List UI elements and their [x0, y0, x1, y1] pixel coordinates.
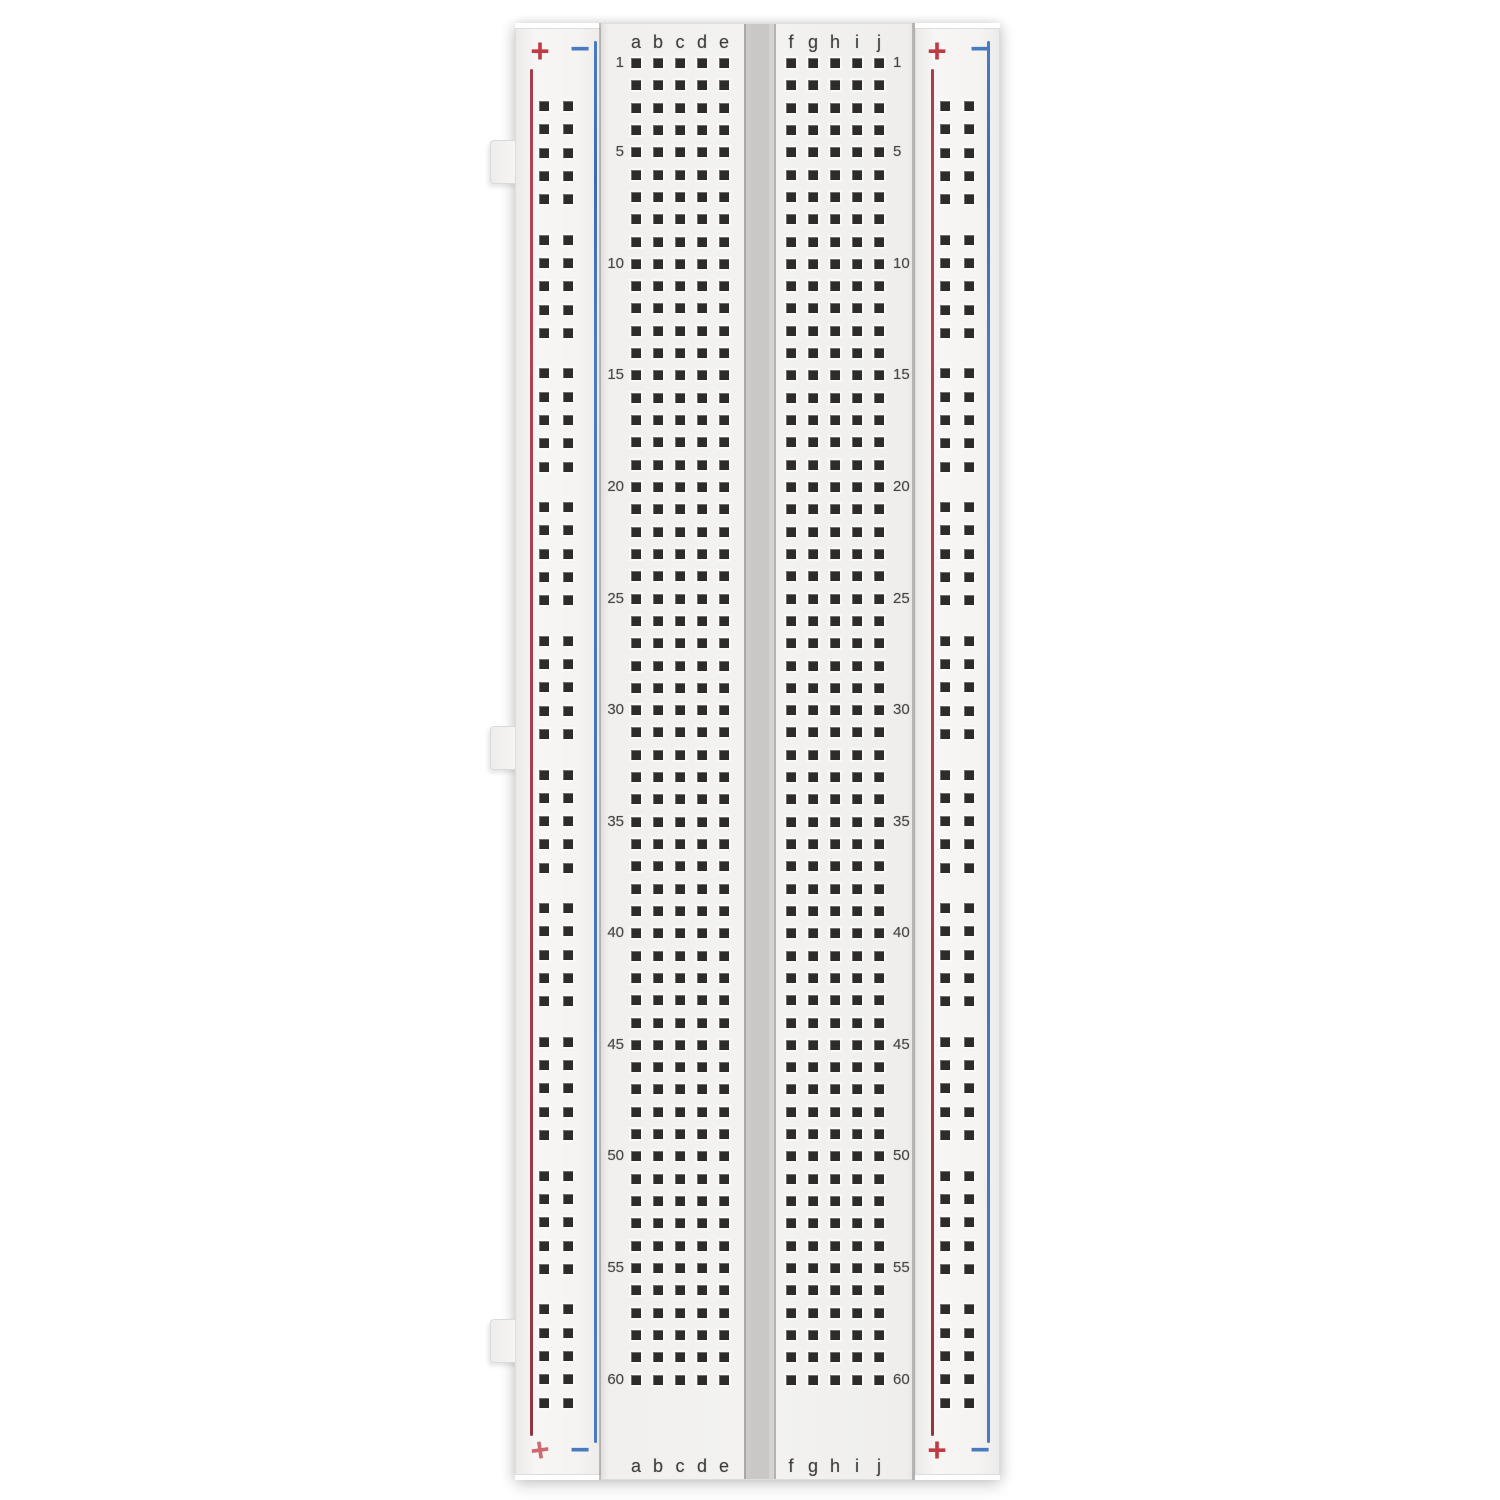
terminal-hole [874, 326, 884, 336]
terminal-hole [874, 1062, 884, 1072]
terminal-hole [653, 1018, 663, 1028]
terminal-hole [675, 1084, 685, 1094]
rail-hole [964, 525, 974, 535]
terminal-hole [786, 683, 796, 693]
column-label: d [692, 1455, 712, 1477]
terminal-hole [786, 1241, 796, 1251]
terminal-hole [830, 482, 840, 492]
rail-hole [563, 1217, 573, 1227]
rail-hole [940, 1374, 950, 1384]
terminal-hole [675, 549, 685, 559]
terminal-hole [830, 348, 840, 358]
terminal-hole [808, 772, 818, 782]
terminal-hole [697, 638, 707, 648]
terminal-hole [719, 794, 729, 804]
terminal-hole [631, 326, 641, 336]
rail-hole [539, 549, 549, 559]
rail-hole [964, 1171, 974, 1181]
terminal-hole [675, 482, 685, 492]
terminal-hole [653, 58, 663, 68]
terminal-hole [719, 326, 729, 336]
rail-hole [539, 305, 549, 315]
terminal-hole [653, 1174, 663, 1184]
terminal-hole [852, 58, 862, 68]
terminal-hole [631, 370, 641, 380]
rail-hole [563, 1374, 573, 1384]
plus-symbol: + [922, 1433, 952, 1467]
terminal-hole [653, 772, 663, 782]
column-label: g [803, 31, 823, 53]
terminal-hole [653, 839, 663, 849]
terminal-hole [852, 817, 862, 827]
column-label: e [714, 1455, 734, 1477]
plus-symbol: + [523, 1431, 557, 1469]
rail-hole [964, 148, 974, 158]
terminal-hole [675, 303, 685, 313]
terminal-hole [697, 1308, 707, 1318]
positive-rail-stripe [530, 69, 533, 1436]
column-label: j [869, 1455, 889, 1477]
terminal-hole [675, 683, 685, 693]
rail-hole [964, 368, 974, 378]
terminal-hole [874, 928, 884, 938]
rail-hole [539, 1060, 549, 1070]
terminal-hole [697, 1241, 707, 1251]
rail-hole [940, 171, 950, 181]
terminal-hole [697, 1375, 707, 1385]
terminal-hole [808, 303, 818, 313]
terminal-hole [830, 1107, 840, 1117]
terminal-hole [675, 504, 685, 514]
rail-hole [940, 438, 950, 448]
rail-hole [539, 1264, 549, 1274]
rail-hole [940, 549, 950, 559]
rail-hole [964, 572, 974, 582]
terminal-hole [852, 527, 862, 537]
terminal-hole [786, 705, 796, 715]
row-number-label: 10 [602, 254, 624, 274]
terminal-hole [874, 1352, 884, 1362]
rail-hole [964, 1241, 974, 1251]
terminal-hole [808, 1263, 818, 1273]
terminal-hole [786, 192, 796, 202]
terminal-hole [719, 1062, 729, 1072]
terminal-hole [653, 1218, 663, 1228]
column-label: f [781, 1455, 801, 1477]
terminal-hole [786, 1218, 796, 1228]
terminal-hole [719, 1129, 729, 1139]
right-power-rail: + − + − [915, 28, 1000, 1475]
terminal-hole [808, 973, 818, 983]
terminal-hole [786, 750, 796, 760]
terminal-hole [830, 817, 840, 827]
terminal-hole [653, 1062, 663, 1072]
rail-hole [964, 1217, 974, 1227]
terminal-hole [786, 571, 796, 581]
rail-hole [940, 595, 950, 605]
terminal-hole [653, 861, 663, 871]
terminal-hole [675, 928, 685, 938]
terminal-hole [830, 928, 840, 938]
terminal-hole [675, 661, 685, 671]
rail-hole [563, 101, 573, 111]
rail-hole [563, 124, 573, 134]
terminal-hole [852, 1330, 862, 1340]
rail-hole [964, 101, 974, 111]
rail-hole [940, 1217, 950, 1227]
terminal-hole [631, 1151, 641, 1161]
terminal-hole [675, 393, 685, 403]
rail-hole [940, 415, 950, 425]
terminal-hole [675, 1129, 685, 1139]
terminal-hole [697, 571, 707, 581]
terminal-hole [631, 80, 641, 90]
rail-hole [940, 1241, 950, 1251]
terminal-hole [675, 103, 685, 113]
column-label: b [648, 1455, 668, 1477]
terminal-hole [631, 527, 641, 537]
terminal-hole [631, 1062, 641, 1072]
rail-hole [539, 235, 549, 245]
terminal-hole [852, 839, 862, 849]
terminal-hole [808, 594, 818, 604]
terminal-hole [719, 1040, 729, 1050]
terminal-hole [719, 951, 729, 961]
rail-hole [964, 636, 974, 646]
row-number-label: 45 [602, 1035, 624, 1055]
rail-hole [539, 770, 549, 780]
terminal-hole [697, 460, 707, 470]
rail-hole [539, 793, 549, 803]
rail-hole [964, 816, 974, 826]
terminal-hole [719, 259, 729, 269]
terminal-hole [631, 928, 641, 938]
terminal-hole [830, 237, 840, 247]
terminal-hole [675, 1040, 685, 1050]
terminal-hole [852, 727, 862, 737]
terminal-hole [697, 125, 707, 135]
terminal-hole [786, 326, 796, 336]
row-number-label: 30 [602, 700, 624, 720]
rail-hole [940, 996, 950, 1006]
terminal-hole [874, 884, 884, 894]
terminal-hole [697, 1196, 707, 1206]
terminal-hole [852, 1308, 862, 1318]
terminal-hole [786, 973, 796, 983]
terminal-hole [808, 1218, 818, 1228]
terminal-hole [808, 80, 818, 90]
rail-hole [964, 462, 974, 472]
terminal-hole [874, 861, 884, 871]
terminal-hole [697, 80, 707, 90]
terminal-hole [719, 727, 729, 737]
minus-symbol: − [565, 32, 595, 66]
terminal-hole [874, 705, 884, 715]
rail-hole [563, 171, 573, 181]
rail-hole [940, 706, 950, 716]
rail-hole [940, 793, 950, 803]
rail-hole [539, 926, 549, 936]
rail-hole [563, 839, 573, 849]
terminal-hole [697, 437, 707, 447]
terminal-hole [631, 281, 641, 291]
rail-hole [539, 729, 549, 739]
rail-hole [539, 1130, 549, 1140]
terminal-hole [808, 995, 818, 1005]
terminal-hole [874, 348, 884, 358]
rail-hole [940, 1398, 950, 1408]
rail-hole [539, 171, 549, 181]
terminal-hole [653, 928, 663, 938]
terminal-hole [830, 103, 840, 113]
rail-hole [964, 328, 974, 338]
rail-hole [539, 1217, 549, 1227]
terminal-hole [631, 549, 641, 559]
terminal-hole [808, 1285, 818, 1295]
terminal-hole [830, 393, 840, 403]
column-label: c [670, 31, 690, 53]
terminal-hole [697, 549, 707, 559]
terminal-hole [631, 1040, 641, 1050]
side-clip-tab-top [490, 140, 518, 184]
terminal-hole [719, 1018, 729, 1028]
rail-hole [563, 996, 573, 1006]
terminal-hole [852, 1040, 862, 1050]
terminal-hole [874, 460, 884, 470]
rail-hole [563, 973, 573, 983]
terminal-hole [675, 794, 685, 804]
terminal-hole [852, 125, 862, 135]
terminal-hole [631, 103, 641, 113]
terminal-hole [719, 125, 729, 135]
rail-hole [563, 682, 573, 692]
column-label: f [781, 31, 801, 53]
terminal-hole [808, 1241, 818, 1251]
rail-hole [539, 863, 549, 873]
terminal-hole [653, 705, 663, 715]
terminal-hole [852, 482, 862, 492]
terminal-hole [631, 794, 641, 804]
terminal-hole [874, 750, 884, 760]
terminal-hole [874, 125, 884, 135]
terminal-hole [852, 170, 862, 180]
terminal-hole [830, 1218, 840, 1228]
terminal-hole [719, 683, 729, 693]
terminal-hole [852, 772, 862, 782]
terminal-hole [631, 1352, 641, 1362]
rail-hole [964, 281, 974, 291]
terminal-hole [830, 326, 840, 336]
terminal-hole [631, 1285, 641, 1295]
terminal-hole [697, 839, 707, 849]
terminal-hole [653, 549, 663, 559]
terminal-hole [830, 1129, 840, 1139]
terminal-hole [852, 794, 862, 804]
rail-hole [940, 258, 950, 268]
terminal-hole [719, 1241, 729, 1251]
terminal-hole [808, 1375, 818, 1385]
rail-hole [940, 194, 950, 204]
terminal-hole [697, 616, 707, 626]
terminal-hole [786, 928, 796, 938]
terminal-hole [808, 884, 818, 894]
rail-hole [964, 926, 974, 936]
terminal-hole [808, 727, 818, 737]
terminal-hole [808, 750, 818, 760]
terminal-hole [697, 1107, 707, 1117]
terminal-hole [675, 214, 685, 224]
terminal-hole [631, 817, 641, 827]
terminal-hole [808, 527, 818, 537]
terminal-hole [675, 1241, 685, 1251]
terminal-hole [697, 705, 707, 715]
terminal-hole [852, 906, 862, 916]
terminal-hole [719, 348, 729, 358]
terminal-hole [697, 170, 707, 180]
rail-hole [539, 101, 549, 111]
terminal-hole [719, 170, 729, 180]
terminal-hole [786, 1062, 796, 1072]
terminal-hole [719, 839, 729, 849]
rail-hole [539, 281, 549, 291]
rail-hole [563, 903, 573, 913]
terminal-hole [697, 951, 707, 961]
rail-hole [563, 415, 573, 425]
terminal-hole [874, 661, 884, 671]
rail-hole [964, 973, 974, 983]
terminal-hole [874, 1285, 884, 1295]
rail-hole [539, 1374, 549, 1384]
terminal-hole [631, 839, 641, 849]
terminal-hole [653, 147, 663, 157]
terminal-hole [631, 147, 641, 157]
terminal-hole [830, 1196, 840, 1206]
terminal-hole [631, 348, 641, 358]
terminal-hole [852, 192, 862, 202]
rail-hole [964, 194, 974, 204]
terminal-hole [830, 1375, 840, 1385]
terminal-hole [631, 415, 641, 425]
terminal-hole [653, 683, 663, 693]
terminal-hole [675, 1352, 685, 1362]
terminal-hole [874, 1018, 884, 1028]
terminal-hole [786, 125, 796, 135]
terminal-hole [697, 772, 707, 782]
terminal-hole [653, 348, 663, 358]
row-number-label: 60 [602, 1370, 624, 1390]
terminal-hole [697, 281, 707, 291]
terminal-hole [653, 125, 663, 135]
terminal-hole [786, 638, 796, 648]
rail-hole [964, 258, 974, 268]
rail-hole [940, 1130, 950, 1140]
terminal-hole [852, 415, 862, 425]
rail-hole [539, 595, 549, 605]
terminal-hole [719, 192, 729, 202]
terminal-hole [874, 995, 884, 1005]
rail-hole [964, 1107, 974, 1117]
terminal-hole [719, 1352, 729, 1362]
terminal-hole [830, 705, 840, 715]
rail-hole [964, 793, 974, 803]
terminal-hole [852, 281, 862, 291]
terminal-hole [808, 951, 818, 961]
terminal-hole [852, 504, 862, 514]
terminal-hole [786, 951, 796, 961]
column-label: i [847, 1455, 867, 1477]
terminal-hole [852, 80, 862, 90]
terminal-hole [852, 1196, 862, 1206]
rail-hole [964, 659, 974, 669]
rail-hole [964, 729, 974, 739]
terminal-hole [874, 237, 884, 247]
terminal-hole [653, 237, 663, 247]
terminal-hole [719, 437, 729, 447]
rail-hole [964, 770, 974, 780]
terminal-hole [675, 1375, 685, 1385]
terminal-hole [719, 928, 729, 938]
terminal-hole [852, 705, 862, 715]
terminal-hole [719, 661, 729, 671]
rail-hole [964, 392, 974, 402]
terminal-hole [786, 1084, 796, 1094]
rail-hole [940, 572, 950, 582]
terminal-hole [719, 1218, 729, 1228]
side-clip-tab-middle [490, 726, 518, 770]
rail-hole [563, 1037, 573, 1047]
terminal-hole [830, 750, 840, 760]
terminal-hole [697, 594, 707, 604]
terminal-hole [830, 1062, 840, 1072]
left-power-rail: + − + − [515, 28, 601, 1475]
terminal-hole [830, 460, 840, 470]
terminal-hole [653, 103, 663, 113]
rail-hole [940, 328, 950, 338]
terminal-hole [786, 661, 796, 671]
terminal-hole [697, 1018, 707, 1028]
terminal-hole [874, 1263, 884, 1273]
terminal-hole [653, 951, 663, 961]
terminal-hole [808, 1084, 818, 1094]
rail-hole [563, 706, 573, 716]
terminal-hole [786, 616, 796, 626]
terminal-hole [830, 303, 840, 313]
terminal-hole [631, 58, 641, 68]
rail-hole [539, 502, 549, 512]
terminal-hole [852, 661, 862, 671]
rail-hole [940, 1107, 950, 1117]
terminal-hole [675, 571, 685, 581]
rail-hole [964, 1083, 974, 1093]
rail-hole [964, 706, 974, 716]
rail-hole [563, 1241, 573, 1251]
terminal-hole [697, 1062, 707, 1072]
terminal-hole [830, 549, 840, 559]
terminal-hole [786, 103, 796, 113]
column-label: i [847, 31, 867, 53]
terminal-hole [808, 460, 818, 470]
rail-hole [539, 706, 549, 716]
terminal-hole [808, 147, 818, 157]
terminal-hole [786, 1285, 796, 1295]
terminal-hole [852, 1151, 862, 1161]
rail-hole [940, 1304, 950, 1314]
terminal-hole [631, 437, 641, 447]
rail-hole [563, 438, 573, 448]
terminal-hole [808, 549, 818, 559]
terminal-hole [786, 237, 796, 247]
rail-hole [539, 525, 549, 535]
